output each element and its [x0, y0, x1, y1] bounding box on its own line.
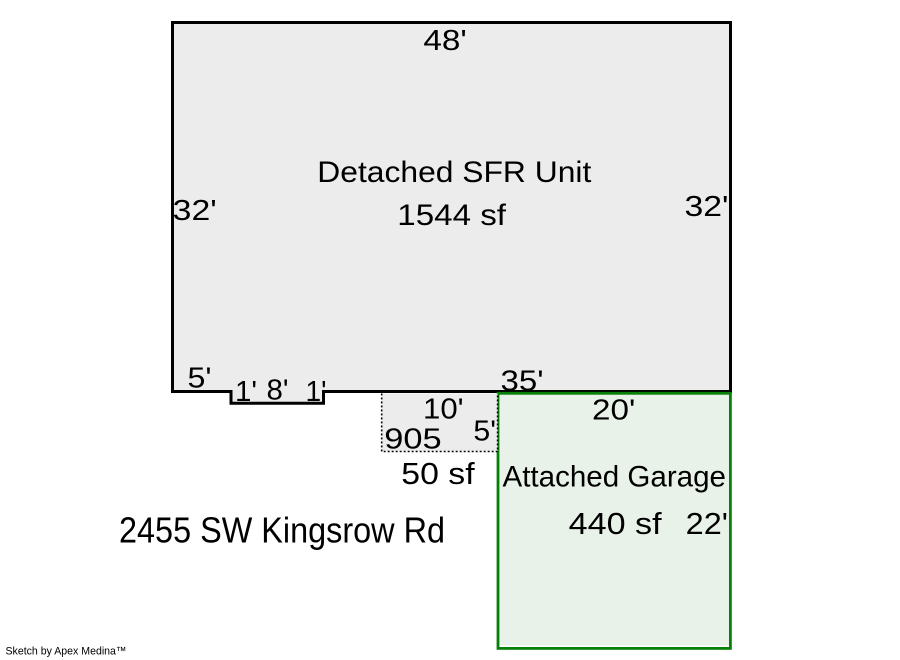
- svg-text:20': 20': [592, 394, 635, 426]
- svg-text:905: 905: [384, 424, 441, 456]
- svg-text:Detached SFR Unit: Detached SFR Unit: [317, 156, 592, 189]
- svg-text:440 sf: 440 sf: [569, 506, 662, 541]
- svg-text:5': 5': [473, 415, 496, 447]
- svg-text:32': 32': [173, 195, 217, 227]
- svg-text:1': 1': [235, 376, 257, 408]
- svg-text:2455 SW Kingsrow Rd: 2455 SW Kingsrow Rd: [119, 509, 445, 550]
- svg-text:5': 5': [188, 363, 212, 395]
- svg-text:10': 10': [423, 394, 464, 426]
- svg-text:Sketch by Apex Medina™: Sketch by Apex Medina™: [6, 646, 127, 658]
- svg-text:22': 22': [686, 506, 728, 541]
- svg-text:1': 1': [306, 376, 327, 408]
- svg-text:Attached Garage: Attached Garage: [503, 461, 727, 494]
- svg-text:35': 35': [501, 366, 544, 398]
- svg-text:48': 48': [423, 25, 466, 57]
- svg-text:8': 8': [267, 375, 289, 407]
- svg-text:32': 32': [685, 191, 729, 223]
- svg-text:50 sf: 50 sf: [401, 456, 475, 491]
- svg-text:1544 sf: 1544 sf: [397, 199, 506, 232]
